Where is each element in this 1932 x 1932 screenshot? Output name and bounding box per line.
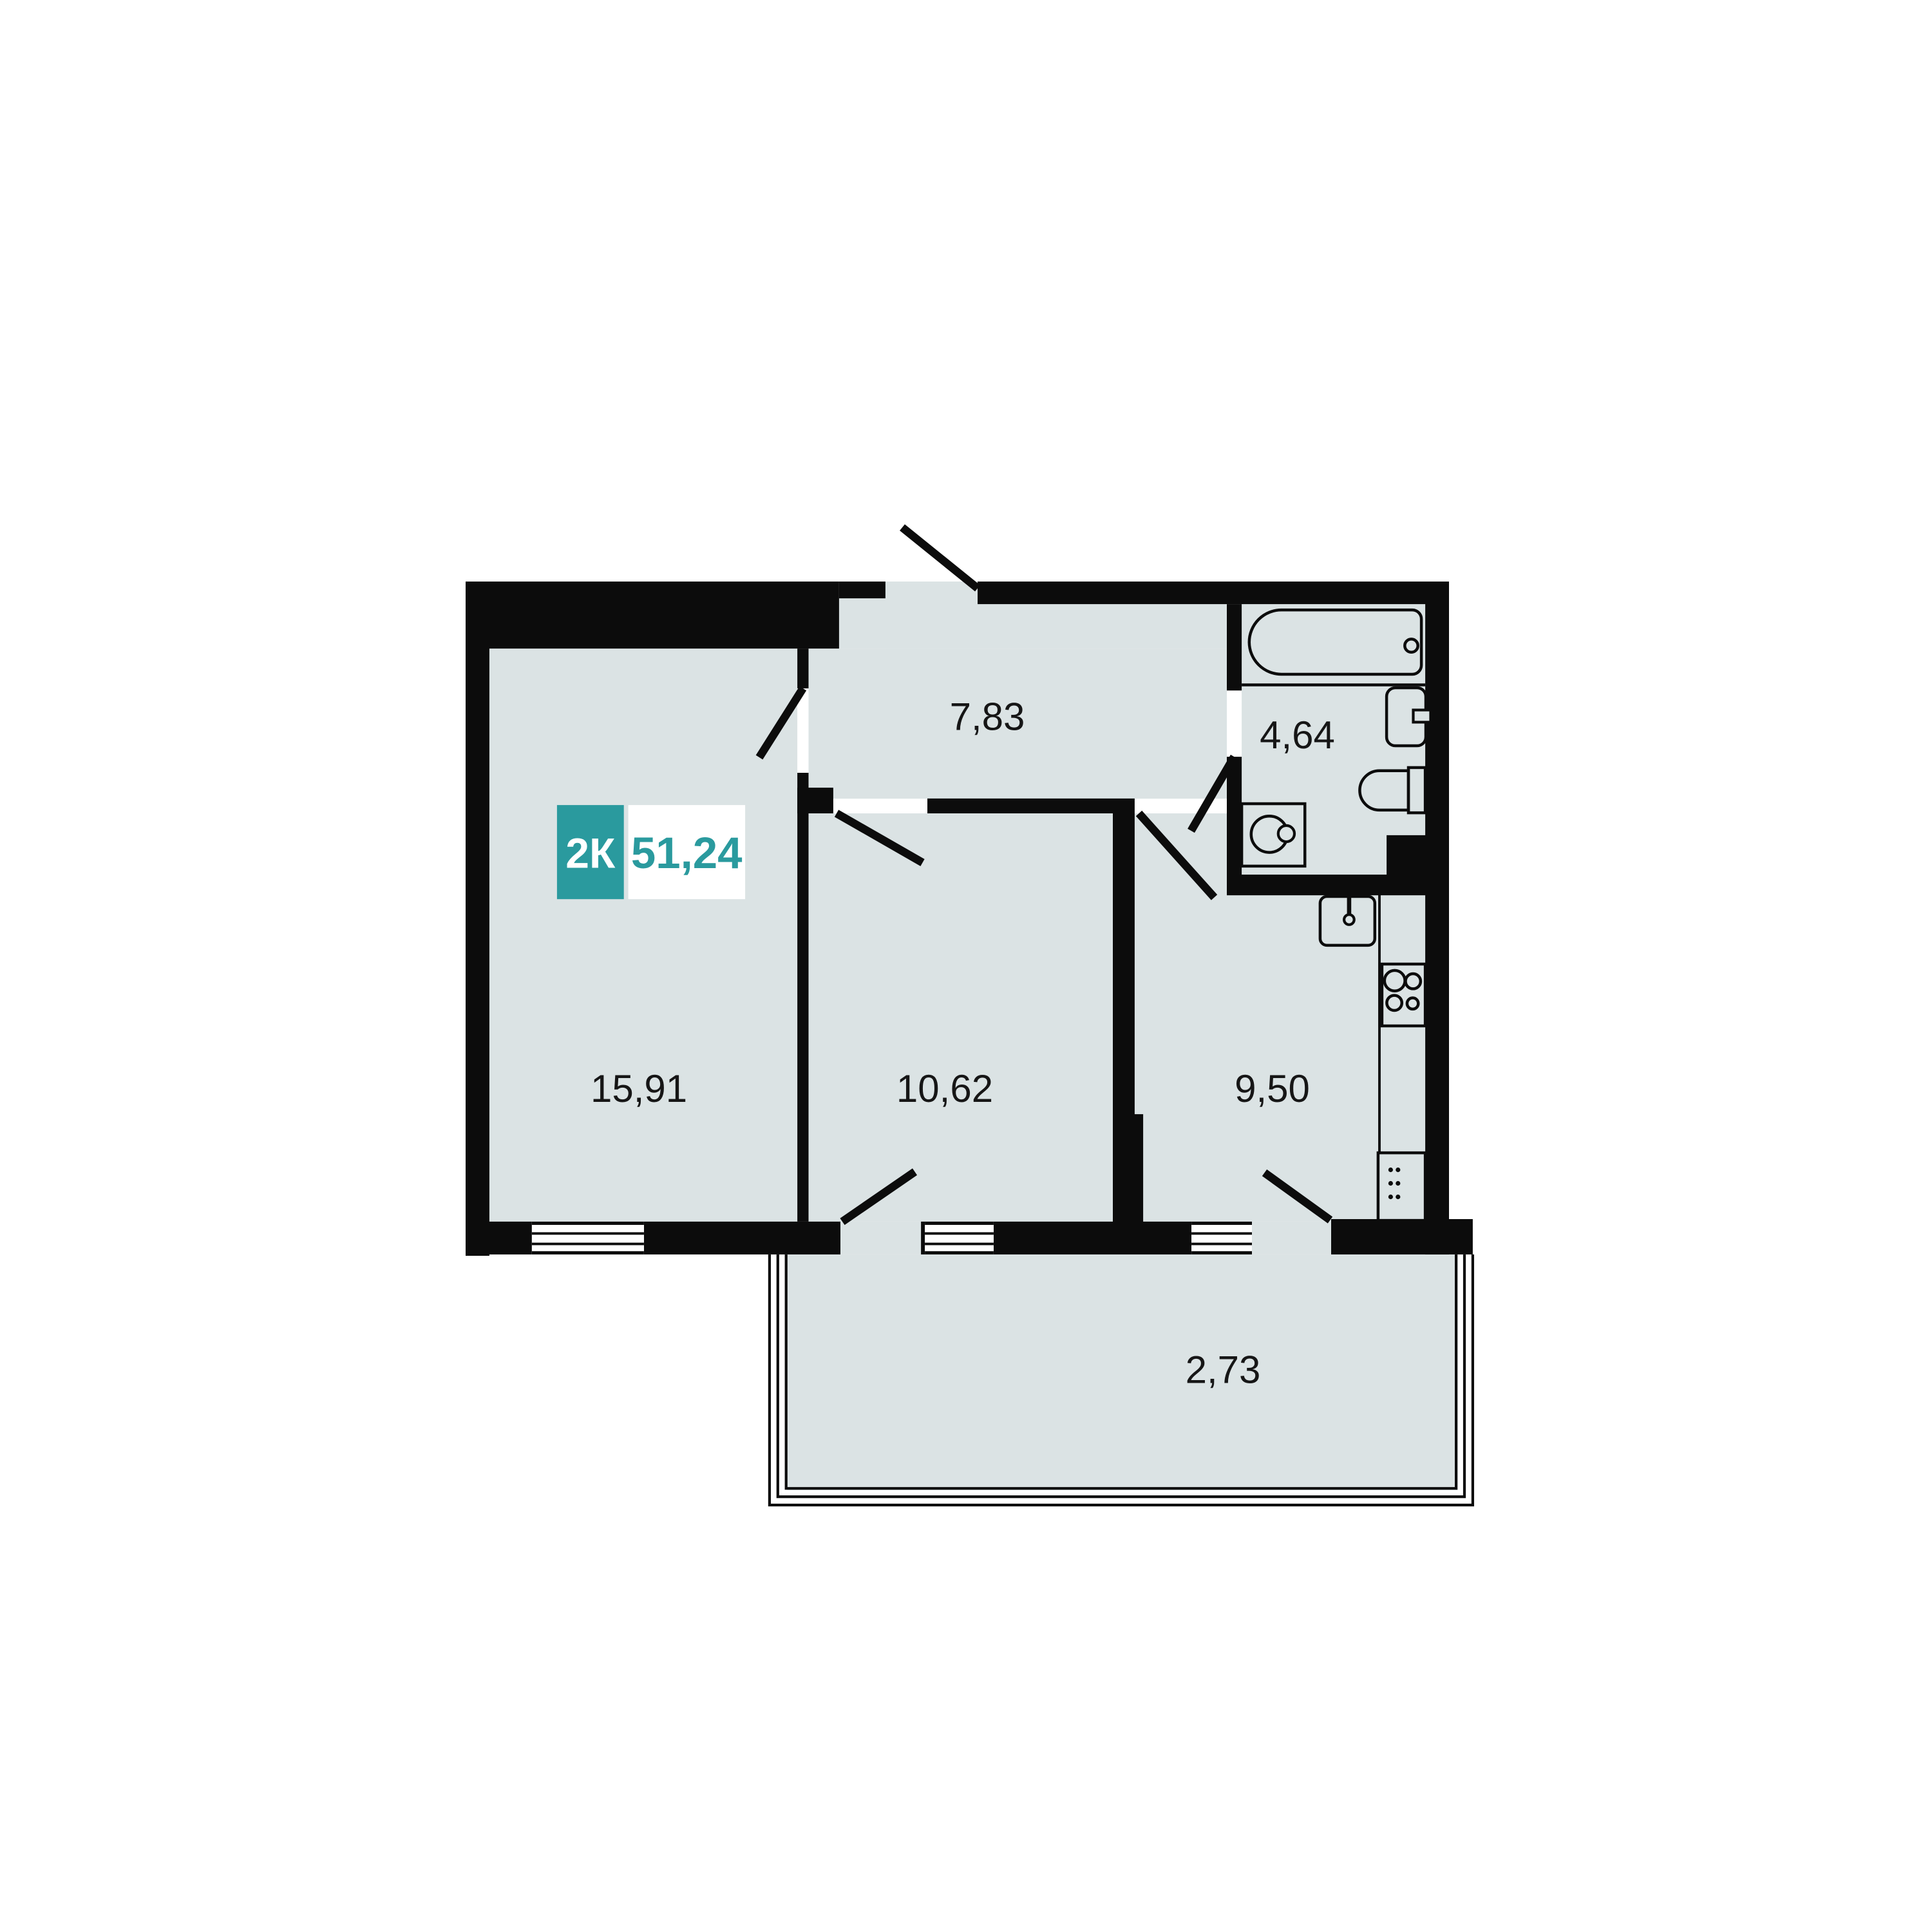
wall-living-hall-pillar [797,649,808,688]
living-room-area-label: 15,91 [591,1067,687,1110]
kitchen-tap-knob-icon [1344,914,1354,925]
wall-bathroom-corner-block [1387,835,1449,895]
room-floors [489,582,1425,1255]
wall-bottom-a [466,1222,532,1255]
badge-area-value: 51,24 [631,828,743,878]
wall-bottom-c [994,1222,1191,1255]
wall-bottom-right-block [1331,1219,1473,1255]
wall-hall-bedroom-left [797,788,833,813]
bedroom-area-label: 10,62 [896,1067,993,1110]
wall-top-step [839,582,885,598]
balcony-floor [788,1255,1458,1490]
wall-bathroom-left-upper [1227,604,1242,690]
kitchen-floor-left [1135,813,1227,1222]
kitchen-window-icon [1191,1222,1252,1255]
living-room-floor [489,649,797,1222]
wall-bathroom-left-lower [1227,757,1242,895]
wall-hall-bedroom-right [927,799,1135,813]
kitchen-balcony-doorway [1252,1222,1331,1255]
balcony-area-label: 2,73 [1186,1349,1261,1392]
bathroom-area-label: 4,64 [1260,714,1335,757]
bedroom-balcony-doorway [840,1222,921,1255]
washing-machine-door-notch [1278,826,1294,842]
badge-type-label: 2К [565,829,616,877]
hallway-floor-upper-right [978,604,1227,649]
hallway-area-label: 7,83 [950,696,1025,739]
living-room-window-icon [532,1222,644,1255]
wall-top-thick [466,582,839,649]
wall-right-exterior [1425,582,1449,1255]
kitchen-area-label: 9,50 [1235,1067,1310,1110]
wall-bottom-b [644,1222,840,1255]
wall-living-lower [797,773,808,1222]
area-badge: 2К 51,24 [557,805,745,899]
bath-sink-tap-icon [1414,710,1431,723]
wall-left-exterior [466,582,489,1256]
floor-plan-canvas: 15,91 10,62 9,50 7,83 4,64 2,73 2К 51,24 [0,0,1932,1932]
wall-bedroom-kitchen-pillar [1113,1114,1143,1222]
floor-plan: 15,91 10,62 9,50 7,83 4,64 2,73 2К 51,24 [0,0,1932,1932]
entrance-opening-floor [885,582,978,649]
bedroom-window-icon [925,1222,994,1255]
wall-bottom-jamb [921,1222,925,1255]
wall-top-right [978,582,1449,604]
entrance-door-icon [902,527,978,589]
bedroom-floor [809,813,1113,1222]
balcony [770,1255,1473,1505]
